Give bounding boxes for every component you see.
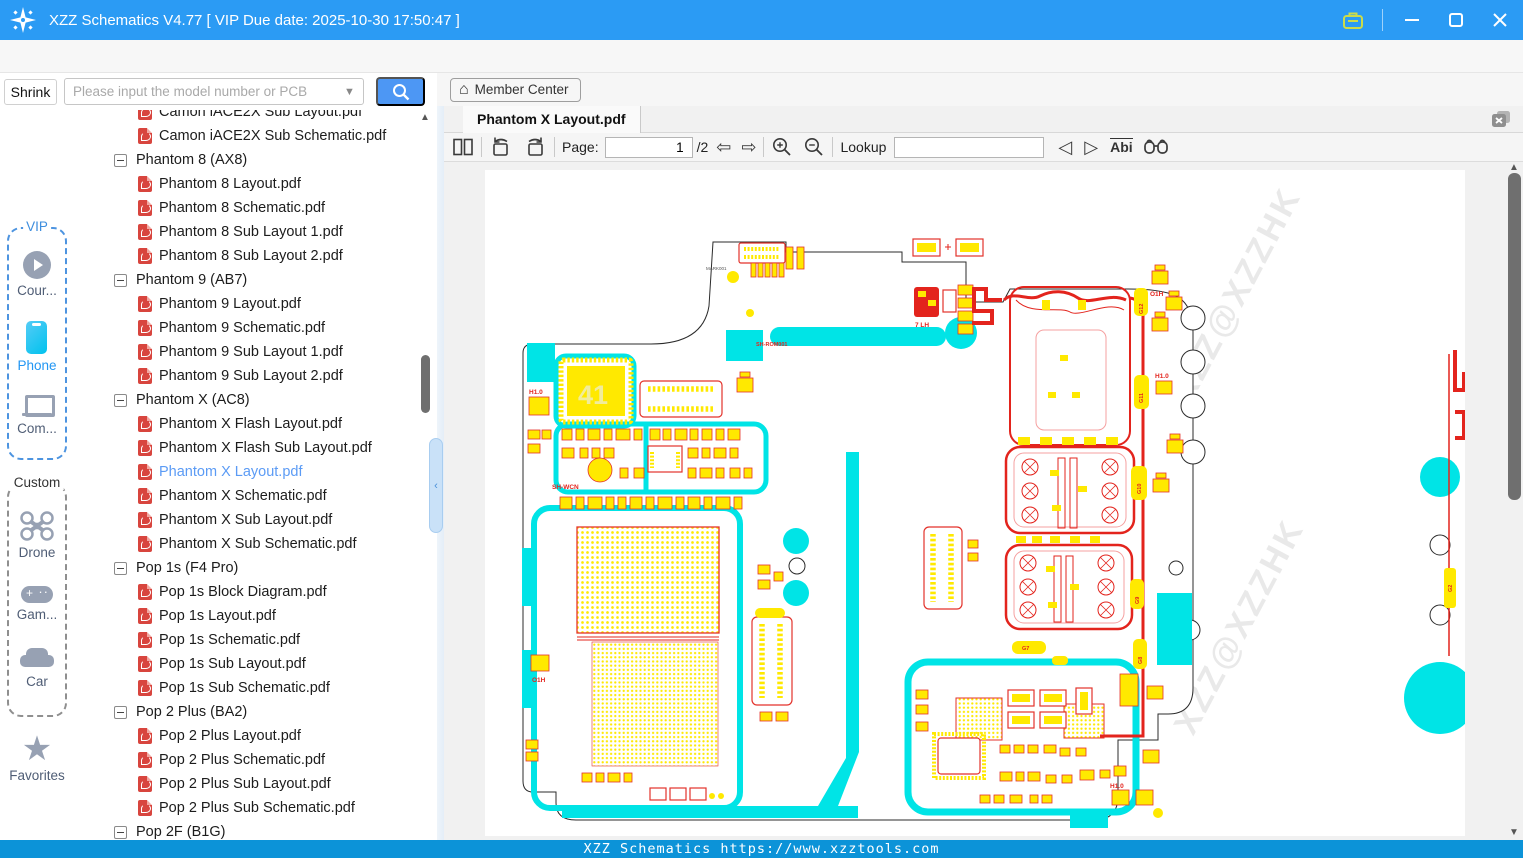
- vip-group: VIP Cour... Phone Com...: [7, 227, 67, 460]
- page-scrollbar-thumb[interactable]: [1508, 173, 1521, 500]
- shrink-button[interactable]: Shrink: [4, 79, 57, 105]
- chevron-down-icon[interactable]: ▼: [344, 86, 355, 98]
- collapse-icon[interactable]: [114, 394, 127, 407]
- tree-item-label[interactable]: Pop 2 Plus Layout.pdf: [159, 728, 301, 744]
- model-search-input[interactable]: [64, 78, 364, 105]
- pdf-icon: [138, 464, 152, 480]
- tree-row[interactable]: Phantom X (AC8): [74, 388, 419, 412]
- tree-item-label[interactable]: Phantom 8 Schematic.pdf: [159, 200, 325, 216]
- tree-row[interactable]: Phantom X Schematic.pdf: [74, 484, 419, 508]
- rail-item-phone[interactable]: Phone: [17, 321, 56, 373]
- svg-text:G7: G7: [1022, 646, 1029, 652]
- lookup-label: Lookup: [840, 139, 886, 155]
- tree-row[interactable]: Phantom 8 Schematic.pdf: [74, 196, 419, 220]
- svg-text:O1H: O1H: [532, 677, 546, 684]
- pdf-icon: [138, 368, 152, 384]
- pdf-icon: [138, 128, 152, 144]
- rail-item-course[interactable]: Cour...: [17, 251, 57, 298]
- svg-text:SH-ROM001: SH-ROM001: [756, 342, 787, 348]
- search-button[interactable]: [376, 77, 425, 106]
- custom-group-label: Custom: [11, 475, 64, 490]
- pdf-icon: [138, 584, 152, 600]
- panel-collapse-handle[interactable]: ‹: [429, 438, 443, 533]
- pdf-icon: [138, 752, 152, 768]
- svg-text:H1.0: H1.0: [529, 389, 543, 396]
- custom-group: Custom Drone Gam... Car: [7, 483, 67, 717]
- tree-row[interactable]: Phantom 8 Layout.pdf: [74, 172, 419, 196]
- car-label: Car: [26, 674, 48, 689]
- rail-item-game[interactable]: Gam...: [17, 586, 58, 622]
- svg-text:G11: G11: [1139, 393, 1145, 403]
- svg-text:G2: G2: [1448, 585, 1454, 592]
- search-row: Shrink ▼: [0, 73, 437, 110]
- game-label: Gam...: [17, 607, 58, 622]
- star-icon: ★: [22, 732, 52, 766]
- tree-row[interactable]: Phantom X Sub Layout.pdf: [74, 508, 419, 532]
- title-bar: XZZ Schematics V4.77 [ VIP Due date: 202…: [0, 0, 1523, 40]
- tree-item-label[interactable]: Pop 1s Sub Schematic.pdf: [159, 680, 330, 696]
- rotate-left-icon[interactable]: [489, 136, 513, 158]
- tree-row[interactable]: Phantom 8 (AX8): [74, 148, 419, 172]
- tree-row[interactable]: Phantom X Flash Sub Layout.pdf: [74, 436, 419, 460]
- collapse-icon[interactable]: [114, 562, 127, 575]
- tree-item-label[interactable]: Pop 1s Schematic.pdf: [159, 632, 300, 648]
- tree-row[interactable]: Phantom 9 Layout.pdf: [74, 292, 419, 316]
- rotate-right-icon[interactable]: [523, 136, 547, 158]
- tree-item-label[interactable]: Phantom 9 Sub Layout 1.pdf: [159, 344, 343, 360]
- pdf-icon: [138, 680, 152, 696]
- tree-item-label[interactable]: Pop 2F (B1G): [136, 824, 225, 840]
- next-page-icon[interactable]: ⇨: [741, 138, 756, 156]
- svg-text:41: 41: [578, 380, 608, 410]
- tree-item-label[interactable]: Phantom 8 (AX8): [136, 152, 247, 168]
- gamepad-icon: [21, 586, 53, 603]
- tree-row[interactable]: Pop 1s Sub Layout.pdf: [74, 652, 419, 676]
- qfn-chip: 41: [561, 360, 631, 422]
- svg-text:7 LH: 7 LH: [915, 322, 929, 329]
- tree-item-label[interactable]: Phantom 9 Sub Layout 2.pdf: [159, 368, 343, 384]
- tree-item-label[interactable]: Phantom X (AC8): [136, 392, 250, 408]
- svg-text:H1.0: H1.0: [1155, 373, 1169, 380]
- pcb-layout-drawing: XZZ@XZZHK XZZ@XZZHK XZZ@XZZHK XZZ@XZZHK: [485, 170, 1465, 836]
- tree-row[interactable]: Pop 1s (F4 Pro): [74, 556, 419, 580]
- drone-icon: [20, 511, 54, 541]
- status-bar: XZZ Schematics https://www.xzztools.com: [0, 840, 1523, 858]
- pdf-icon: [138, 776, 152, 792]
- drone-label: Drone: [19, 545, 56, 560]
- member-row: ⌂ Member Center: [437, 73, 1523, 106]
- phone-label: Phone: [17, 358, 56, 373]
- tree-row[interactable]: Pop 1s Layout.pdf: [74, 604, 419, 628]
- tree-row[interactable]: Phantom 9 Sub Layout 1.pdf: [74, 340, 419, 364]
- tree-item-label[interactable]: Phantom X Layout.pdf: [159, 464, 303, 480]
- page-scrollbar[interactable]: ▲ ▼: [1507, 162, 1522, 840]
- home-icon: ⌂: [459, 81, 469, 99]
- tree-item-label[interactable]: Pop 2 Plus Sub Schematic.pdf: [159, 800, 355, 816]
- tree-item-label[interactable]: Pop 2 Plus (BA2): [136, 704, 247, 720]
- search-icon: [391, 82, 411, 102]
- close-all-tabs-icon[interactable]: [1491, 110, 1511, 128]
- page-number-input[interactable]: [605, 137, 693, 158]
- scroll-up-icon[interactable]: ▲: [420, 112, 430, 123]
- titlebar-separator: [1382, 9, 1383, 31]
- tab-bar: Phantom X Layout.pdf: [444, 106, 1523, 133]
- tree-item-label[interactable]: Phantom X Schematic.pdf: [159, 488, 327, 504]
- category-rail: VIP Cour... Phone Com... Custom Drone: [0, 110, 74, 840]
- close-button[interactable]: [1485, 5, 1515, 35]
- tree-item-label[interactable]: Phantom X Sub Schematic.pdf: [159, 536, 356, 552]
- laptop-icon: [22, 395, 52, 417]
- pdf-toolbar: Page: /2 ⇦ ⇨ Lookup ◁ ▷ Abi: [444, 133, 1523, 162]
- tree-item-label[interactable]: Phantom 8 Sub Layout 1.pdf: [159, 224, 343, 240]
- member-center-button[interactable]: ⌂ Member Center: [450, 78, 581, 102]
- collapse-icon[interactable]: [114, 706, 127, 719]
- collapse-icon[interactable]: [114, 154, 127, 167]
- pdf-icon: [138, 536, 152, 552]
- pdf-icon: [138, 224, 152, 240]
- pdf-icon: [138, 488, 152, 504]
- pdf-icon: [138, 632, 152, 648]
- scroll-up-icon[interactable]: ▲: [1509, 162, 1519, 173]
- match-case-icon[interactable]: Abi: [1110, 138, 1133, 155]
- svg-text:G9: G9: [1135, 597, 1141, 604]
- prev-page-icon[interactable]: ⇦: [716, 138, 731, 156]
- file-tree: Camon iACE2X Sub Layout.pdf Camon iACE2X…: [74, 100, 419, 844]
- pdf-icon: [138, 248, 152, 264]
- pdf-icon: [138, 320, 152, 336]
- tree-item-label[interactable]: Phantom 8 Sub Layout 2.pdf: [159, 248, 343, 264]
- tree-row[interactable]: Phantom 9 Schematic.pdf: [74, 316, 419, 340]
- page-total: /2: [697, 139, 709, 155]
- favorites-label: Favorites: [9, 768, 65, 783]
- page-label: Page:: [562, 139, 599, 155]
- tree-item-label[interactable]: Phantom X Flash Sub Layout.pdf: [159, 440, 372, 456]
- pdf-icon: [138, 440, 152, 456]
- course-label: Cour...: [17, 283, 57, 298]
- car-icon: [20, 648, 54, 670]
- binoculars-icon[interactable]: [1143, 137, 1169, 157]
- play-icon: [23, 251, 51, 279]
- zoom-out-icon[interactable]: [803, 136, 825, 158]
- tree-item-label[interactable]: Phantom 9 Schematic.pdf: [159, 320, 325, 336]
- svg-text:G10: G10: [1137, 484, 1143, 494]
- tree-row[interactable]: Pop 2 Plus (BA2): [74, 700, 419, 724]
- pdf-icon: [138, 728, 152, 744]
- tab-phantom-x-layout[interactable]: Phantom X Layout.pdf: [463, 106, 641, 133]
- tree-item-label[interactable]: Pop 2 Plus Schematic.pdf: [159, 752, 325, 768]
- tree-row[interactable]: Phantom 9 Sub Layout 2.pdf: [74, 364, 419, 388]
- tree-item-label[interactable]: Phantom X Sub Layout.pdf: [159, 512, 332, 528]
- vip-briefcase-icon[interactable]: [1338, 5, 1368, 35]
- svg-text:SH-WCN: SH-WCN: [552, 484, 579, 491]
- svg-text:H1.0: H1.0: [1110, 783, 1124, 790]
- member-center-label: Member Center: [475, 82, 569, 97]
- tree-item-label[interactable]: Pop 2 Plus Sub Layout.pdf: [159, 776, 331, 792]
- tree-row[interactable]: Pop 1s Sub Schematic.pdf: [74, 676, 419, 700]
- pdf-icon: [138, 344, 152, 360]
- minimize-button[interactable]: [1397, 5, 1427, 35]
- pdf-icon: [138, 656, 152, 672]
- pdf-icon: [138, 296, 152, 312]
- tree-item-label[interactable]: Pop 1s Layout.pdf: [159, 608, 276, 624]
- pdf-icon: [138, 800, 152, 816]
- tree-item-label[interactable]: Phantom 8 Layout.pdf: [159, 176, 301, 192]
- tree-row[interactable]: Phantom X Flash Layout.pdf: [74, 412, 419, 436]
- app-logo-icon: [9, 6, 37, 34]
- find-next-icon[interactable]: ▷: [1084, 138, 1098, 156]
- pdf-icon: [138, 608, 152, 624]
- rail-item-favorites[interactable]: ★ Favorites: [0, 732, 74, 783]
- tree-item-label[interactable]: Camon iACE2X Sub Schematic.pdf: [159, 128, 386, 144]
- tree-row[interactable]: Camon iACE2X Sub Schematic.pdf: [74, 124, 419, 148]
- tree-row[interactable]: Phantom 9 (AB7): [74, 268, 419, 292]
- tree-item-label[interactable]: Phantom 9 (AB7): [136, 272, 247, 288]
- pdf-page-area[interactable]: XZZ@XZZHK XZZ@XZZHK XZZ@XZZHK XZZ@XZZHK: [444, 162, 1523, 840]
- pdf-icon: [138, 176, 152, 192]
- tree-row[interactable]: Pop 2 Plus Layout.pdf: [74, 724, 419, 748]
- tree-item-label[interactable]: Phantom 9 Layout.pdf: [159, 296, 301, 312]
- menu-bar: [0, 40, 1523, 73]
- rail-item-car[interactable]: Car: [20, 648, 54, 689]
- tree-row[interactable]: Phantom 8 Sub Layout 1.pdf: [74, 220, 419, 244]
- status-text: XZZ Schematics https://www.xzztools.com: [584, 841, 940, 857]
- tree-item-label[interactable]: Pop 1s (F4 Pro): [136, 560, 238, 576]
- tree-item-label[interactable]: Pop 1s Block Diagram.pdf: [159, 584, 327, 600]
- pdf-icon: [138, 416, 152, 432]
- collapse-icon[interactable]: [114, 274, 127, 287]
- tree-row[interactable]: Phantom 8 Sub Layout 2.pdf: [74, 244, 419, 268]
- pdf-icon: [138, 200, 152, 216]
- tree-scrollbar-thumb[interactable]: [421, 355, 430, 413]
- tree-row[interactable]: Pop 2 Plus Sub Schematic.pdf: [74, 796, 419, 820]
- tree-row[interactable]: Pop 1s Schematic.pdf: [74, 628, 419, 652]
- svg-text:MARK001: MARK001: [706, 266, 727, 271]
- svg-text:G8: G8: [1138, 657, 1144, 664]
- find-prev-icon[interactable]: ◁: [1058, 138, 1072, 156]
- scroll-down-icon[interactable]: ▼: [1509, 827, 1519, 838]
- maximize-button[interactable]: [1441, 5, 1471, 35]
- phone-icon: [26, 321, 47, 354]
- lookup-input[interactable]: [894, 137, 1044, 158]
- two-page-view-icon[interactable]: [452, 137, 474, 157]
- tree-row[interactable]: Pop 2 Plus Sub Layout.pdf: [74, 772, 419, 796]
- rail-item-drone[interactable]: Drone: [19, 511, 56, 560]
- pdf-page: XZZ@XZZHK XZZ@XZZHK XZZ@XZZHK XZZ@XZZHK: [485, 170, 1465, 836]
- computer-label: Com...: [17, 421, 57, 436]
- collapse-icon[interactable]: [114, 826, 127, 839]
- window-title: XZZ Schematics V4.77 [ VIP Due date: 202…: [49, 12, 460, 29]
- rail-item-computer[interactable]: Com...: [17, 395, 57, 436]
- tree-row[interactable]: Phantom X Sub Schematic.pdf: [74, 532, 419, 556]
- tree-item-label[interactable]: Pop 1s Sub Layout.pdf: [159, 656, 306, 672]
- tree-row[interactable]: Pop 2 Plus Schematic.pdf: [74, 748, 419, 772]
- tree-row[interactable]: Phantom X Layout.pdf: [74, 460, 419, 484]
- zoom-in-icon[interactable]: [771, 136, 793, 158]
- tree-item-label[interactable]: Phantom X Flash Layout.pdf: [159, 416, 342, 432]
- pdf-icon: [138, 512, 152, 528]
- svg-text:O1H: O1H: [1150, 291, 1164, 298]
- vip-group-label: VIP: [23, 219, 51, 234]
- svg-text:G12: G12: [1139, 304, 1145, 314]
- tree-row[interactable]: Pop 1s Block Diagram.pdf: [74, 580, 419, 604]
